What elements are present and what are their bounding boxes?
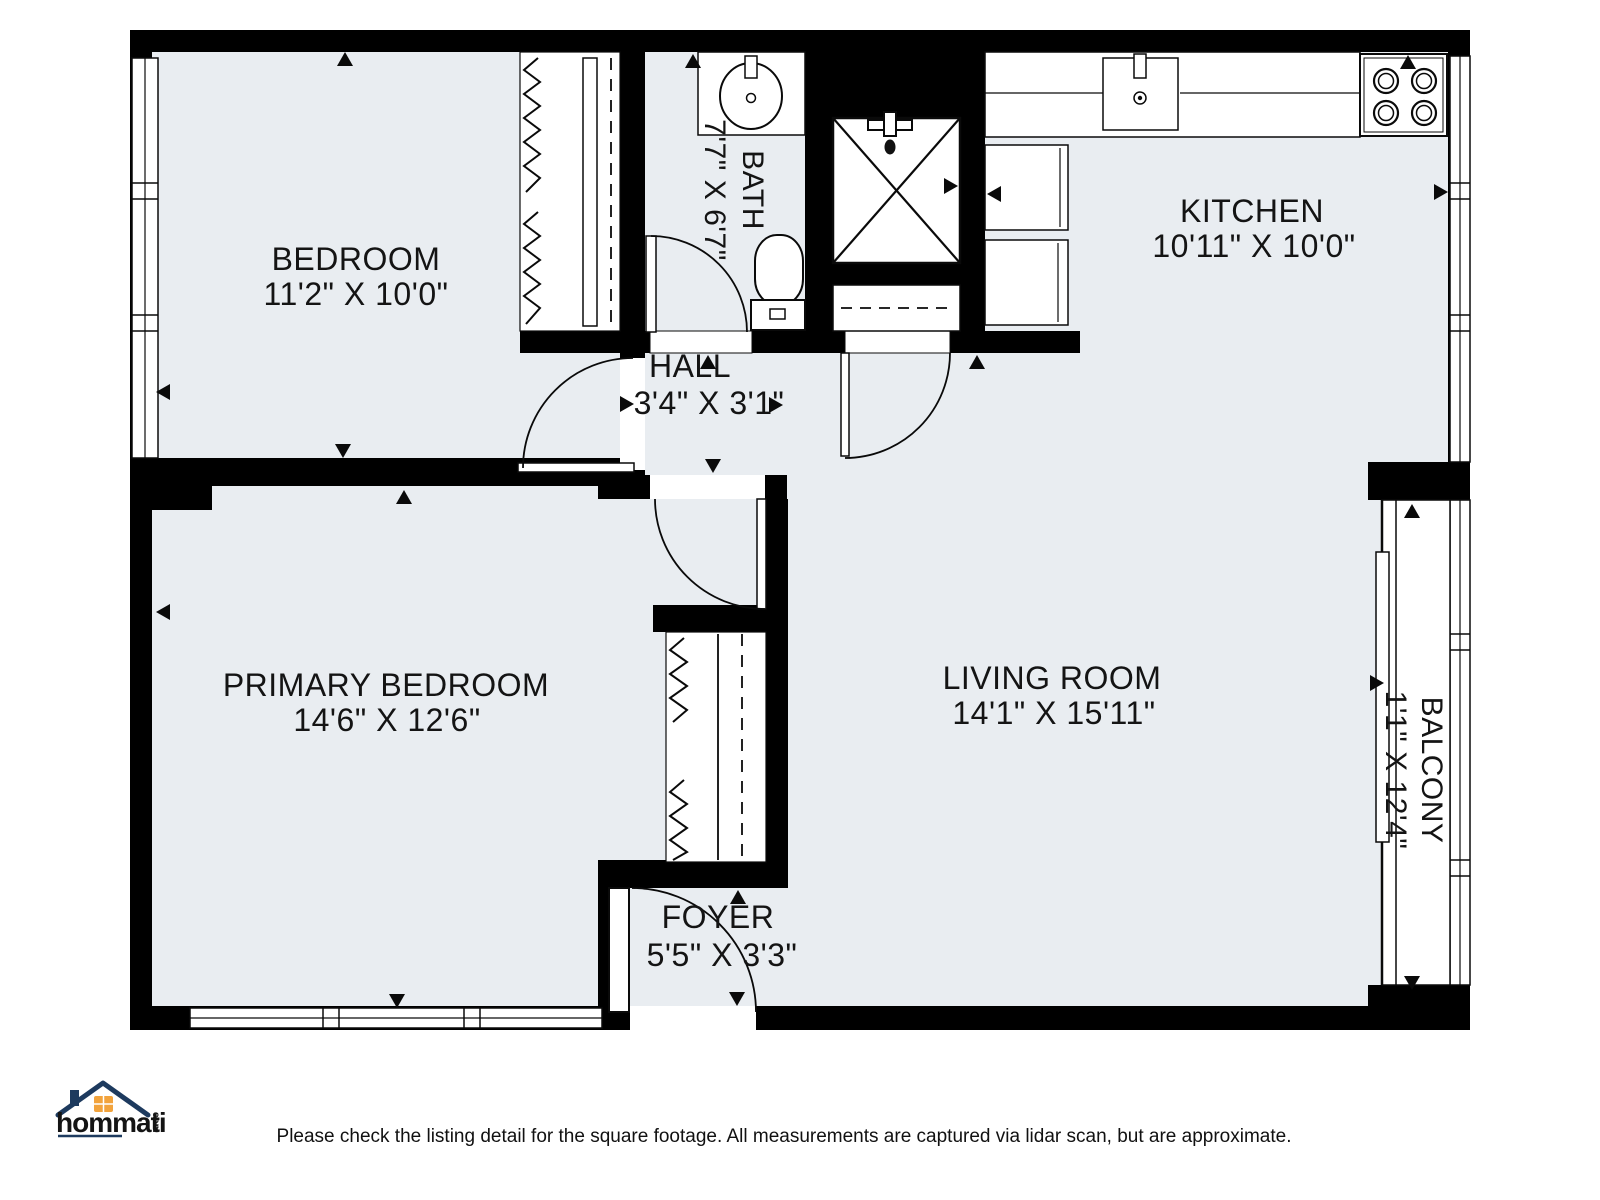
kitchen-door-leaf: [841, 353, 849, 456]
toilet-bowl-icon: [755, 235, 803, 305]
room-dims-bath: 7'7" X 6'7": [698, 119, 731, 261]
wall-shower-bottom: [805, 263, 960, 285]
fridge-icon: [985, 145, 1068, 230]
room-label-primary-bedroom: PRIMARY BEDROOM: [223, 667, 549, 703]
window-kitchen-right: [1450, 56, 1470, 462]
wall-bedroom-bath: [620, 52, 645, 358]
window-bedroom-left: [132, 58, 158, 458]
room-label-foyer: FOYER: [662, 899, 775, 935]
kitchen-faucet-icon: [1134, 54, 1146, 78]
room-label-bath: BATH: [736, 150, 769, 230]
bedroom-door-leaf: [518, 463, 634, 472]
shower-drop-icon: [885, 140, 896, 155]
logo: hommati com: [56, 1083, 166, 1138]
window-balcony-right: [1450, 500, 1470, 985]
bath-faucet-icon: [745, 56, 757, 78]
entry-door-leaf: [609, 888, 629, 1012]
disclaimer-text: Please check the listing detail for the …: [277, 1126, 1292, 1147]
wall-balcony-top: [1368, 462, 1470, 500]
room-dims-foyer: 5'5" X 3'3": [647, 937, 798, 973]
wall-shower-top: [833, 30, 960, 118]
room-dims-primary-bedroom: 14'6" X 12'6": [293, 702, 480, 738]
wall-foyer-top: [598, 860, 788, 888]
wall-balcony-bottom: [1368, 985, 1470, 1030]
room-dims-bedroom: 11'2" X 10'0": [264, 276, 449, 312]
room-label-kitchen: KITCHEN: [1180, 193, 1324, 229]
room-dims-kitchen: 10'11" X 10'0": [1152, 228, 1355, 264]
wall-living-left: [766, 499, 788, 888]
floorplan-canvas: BEDROOM 11'2" X 10'0" BATH 7'7" X 6'7" K…: [0, 0, 1600, 1200]
room-dims-hall: 3'4" X 3'1": [634, 385, 785, 421]
door-opening: [845, 331, 950, 353]
primary-closet: [666, 632, 766, 862]
wall-shower-kitchen: [960, 30, 985, 353]
logo-suffix: com: [150, 1112, 161, 1133]
room-dims-living-room: 14'1" X 15'11": [952, 695, 1155, 731]
room-label-balcony: BALCONY: [1415, 697, 1448, 844]
kitchen-cabinet: [985, 240, 1068, 325]
door-opening: [630, 1006, 756, 1030]
wall-primary-top-thick: [130, 486, 212, 510]
room-label-bedroom: BEDROOM: [272, 241, 441, 277]
wall-top: [130, 30, 1470, 52]
window-primary-bottom: [190, 1008, 602, 1028]
primary-door-leaf: [757, 499, 766, 609]
bedroom-closet: [520, 52, 620, 331]
closet-interior: [520, 52, 620, 331]
bath-door-leaf: [646, 236, 656, 332]
shower-head-icon: [884, 112, 896, 136]
room-label-hall: HALL: [649, 348, 731, 384]
door-opening: [650, 475, 765, 499]
floorplan-page: BEDROOM 11'2" X 10'0" BATH 7'7" X 6'7" K…: [0, 0, 1600, 1200]
kitchen-drain-dot: [1138, 96, 1142, 100]
room-dims-balcony: 1'1" X 12'4": [1379, 691, 1412, 850]
toilet-button-icon: [770, 309, 785, 319]
wall-bath-shower: [805, 30, 833, 331]
logo-wordmark: hommati: [56, 1107, 166, 1138]
room-label-living-room: LIVING ROOM: [943, 660, 1162, 696]
logo-chimney-icon: [70, 1090, 79, 1106]
closet-sliding-panel: [583, 58, 597, 326]
